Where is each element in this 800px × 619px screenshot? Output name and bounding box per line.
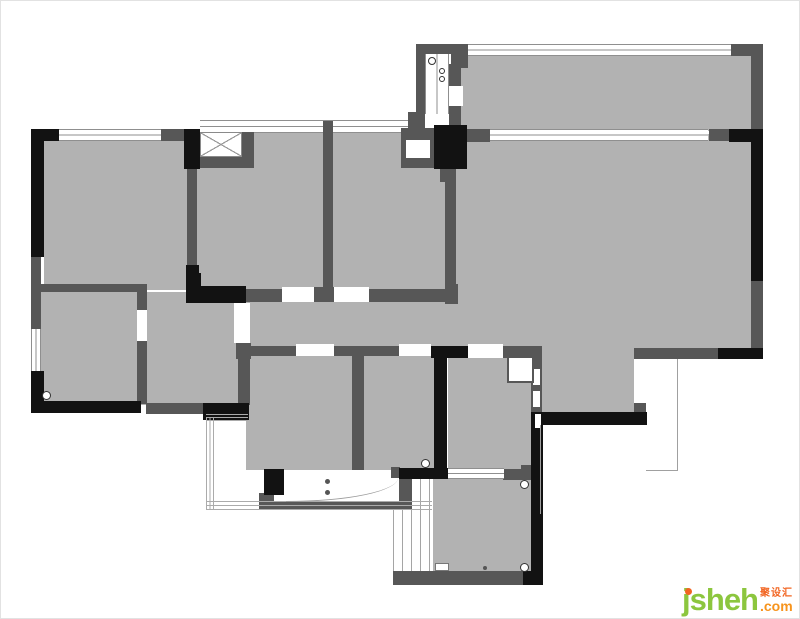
wall-segment [186, 273, 201, 288]
wall-segment [751, 279, 763, 349]
wall-segment [236, 343, 251, 359]
door-opening [533, 391, 540, 407]
hinge-marker [421, 459, 430, 468]
door-opening [234, 303, 250, 343]
wall-segment [751, 129, 763, 281]
marker-dot [325, 479, 330, 484]
window [488, 129, 708, 141]
fixture-box [507, 356, 534, 383]
railing-line [677, 359, 678, 471]
room-bottom-mid [362, 354, 436, 470]
hinge-marker [42, 391, 51, 400]
watermark-logo: jsheh 聚设汇 .com [682, 588, 793, 613]
wall-segment [264, 469, 284, 495]
door-opening [406, 140, 430, 158]
wall-segment [31, 129, 44, 257]
balcony-railing [206, 501, 432, 510]
sliding-door [448, 468, 504, 479]
window [59, 129, 161, 141]
room-top-right [456, 54, 753, 131]
wall-segment [186, 286, 246, 303]
door-opening [468, 344, 503, 358]
wall-segment [445, 164, 456, 290]
wall-segment [31, 257, 41, 329]
balcony-railing [206, 414, 248, 421]
wall-segment [434, 125, 467, 169]
wall-segment [466, 129, 490, 142]
wall-segment [246, 289, 282, 302]
railing-line [540, 425, 541, 514]
wall-segment [751, 51, 763, 131]
wall-segment [393, 571, 533, 585]
logo-brand: jsheh [682, 588, 758, 613]
window [31, 329, 41, 371]
wall-segment [31, 401, 141, 413]
logo-tld-text: .com [760, 599, 793, 613]
wall-segment [187, 167, 197, 269]
wall-segment [416, 51, 425, 115]
marker-dot [325, 490, 330, 495]
wall-segment [399, 468, 449, 479]
hinge-marker [520, 563, 529, 572]
door-opening [334, 287, 369, 302]
fixture [435, 563, 449, 571]
wall-segment [434, 354, 447, 479]
wall-segment [718, 348, 763, 359]
wall-segment [523, 571, 543, 585]
wall-segment [199, 156, 254, 168]
wall-segment [246, 346, 296, 356]
wall-segment [39, 284, 139, 292]
railing-line [646, 470, 678, 471]
door-opening [533, 369, 540, 385]
room-bed-left [44, 140, 187, 290]
wall-segment [334, 346, 399, 356]
balcony-railing [206, 417, 214, 509]
wall-segment [531, 412, 647, 425]
wall-segment [369, 289, 447, 302]
room-mid-small [141, 292, 247, 405]
room-bottom-right [433, 478, 532, 573]
wall-segment [184, 129, 200, 169]
wall-segment [137, 341, 147, 404]
wall-segment [709, 129, 731, 141]
hinge-marker [428, 57, 436, 65]
wall-segment [323, 121, 333, 295]
door-opening [296, 344, 334, 356]
wall-segment [352, 354, 364, 470]
floor-plan-image: jsheh 聚设汇 .com [0, 0, 800, 619]
room-right-lower [533, 346, 634, 414]
hinge-marker [520, 480, 529, 489]
wall-segment [161, 129, 186, 141]
door-opening [282, 287, 314, 302]
wall-segment [238, 359, 250, 405]
room-right-large [451, 134, 753, 349]
room-bottom-center [246, 354, 356, 470]
room-bottom-left [41, 292, 137, 403]
hinge-marker [439, 76, 445, 82]
door-opening [449, 86, 463, 106]
wall-segment [634, 348, 720, 359]
wall-segment [146, 403, 204, 414]
shaft-symbol [200, 132, 242, 157]
logo-dot-icon [685, 588, 692, 595]
logo-brand-text: jsheh [682, 582, 758, 617]
door-opening [137, 310, 147, 341]
logo-side: 聚设汇 .com [760, 588, 793, 613]
window [468, 44, 731, 56]
wall-segment [449, 64, 461, 87]
marker-dot [483, 566, 487, 570]
hinge-marker [439, 68, 445, 74]
wall-segment [531, 412, 543, 585]
door-opening [399, 344, 431, 356]
